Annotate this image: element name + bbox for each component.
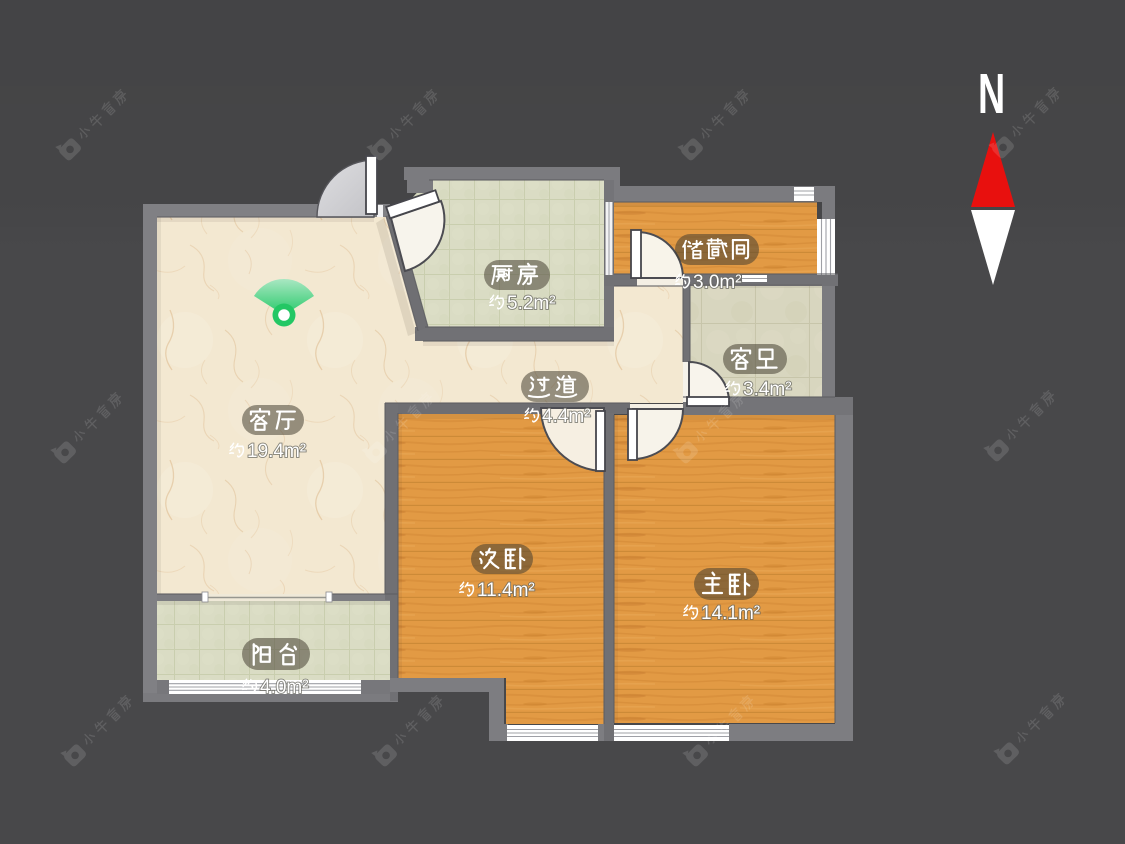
svg-text:N: N <box>978 62 1005 126</box>
svg-text:14.1m²: 14.1m² <box>701 603 760 624</box>
svg-text:5.2m²: 5.2m² <box>507 293 556 314</box>
svg-text:4.0m²: 4.0m² <box>260 677 309 698</box>
svg-text:4.4m²: 4.4m² <box>542 406 591 427</box>
svg-text:11.4m²: 11.4m² <box>477 580 535 601</box>
svg-text:3.4m²: 3.4m² <box>743 379 792 400</box>
svg-text:3.0m²: 3.0m² <box>693 272 742 293</box>
svg-text:19.4m²: 19.4m² <box>247 441 306 462</box>
